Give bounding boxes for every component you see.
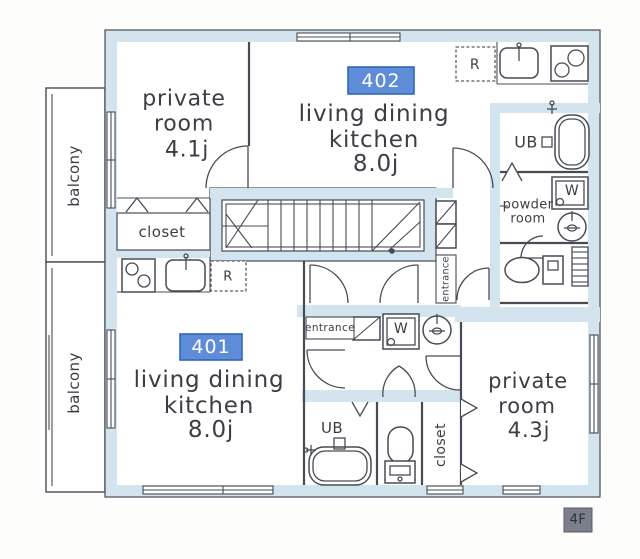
unit-401-number: 401 (191, 336, 230, 358)
ldk-401-size: 8.0j (188, 417, 234, 443)
ub-401-label: UB (321, 419, 343, 437)
fridge-401: R (211, 261, 246, 291)
kitchen-sink-402-icon (500, 43, 538, 78)
ldk-402-line1: living dining (299, 101, 450, 127)
window-top (297, 33, 400, 41)
private-402-line1: private (142, 87, 225, 112)
floor-plan-page: balcony balcony (0, 0, 640, 559)
toilet-401-icon (385, 427, 415, 483)
private-402-size: 4.1j (165, 138, 209, 163)
powder-room-line1: powder (503, 198, 554, 213)
unit-401-badge: 401 (180, 334, 242, 360)
powder-room-line2: room (510, 212, 545, 227)
staircase (222, 200, 424, 254)
bathtub-401-icon (304, 445, 371, 485)
washing-machine-401-icon: W (383, 314, 419, 349)
window-bottom-private-401 (503, 486, 540, 494)
unit-402-number: 402 (361, 70, 400, 92)
fridge-402: R (456, 47, 495, 81)
floor-badge: 4F (564, 508, 592, 532)
fridge-401-label: R (223, 270, 232, 285)
stove-401-icon (122, 259, 155, 292)
ldk-401-line2: kitchen (164, 393, 254, 419)
window-right-private-401 (590, 335, 598, 433)
ub-402-label: UB (514, 133, 538, 152)
balcony-lower: balcony (46, 262, 105, 492)
washer-402-label: W (565, 183, 579, 199)
stove-402-icon (551, 46, 588, 81)
balcony-lower-label: balcony (65, 352, 83, 414)
ldk-402-line2: kitchen (329, 127, 419, 153)
ldk-402-size: 8.0j (353, 151, 399, 177)
floor-badge-label: 4F (570, 513, 587, 528)
window-left-private-402 (107, 112, 115, 208)
shoe-cabinet-401 (353, 317, 380, 340)
entrance-401: entrance (305, 317, 355, 339)
shoe-cabinet-402 (436, 201, 456, 248)
private-401-line1: private (488, 369, 568, 393)
balcony-upper: balcony (46, 88, 105, 262)
entrance-402-label: entrance (441, 256, 452, 302)
window-bottom-ldk-401 (143, 486, 273, 494)
unit-402-badge: 402 (348, 67, 414, 94)
balcony-upper-label: balcony (65, 145, 83, 207)
closet-401-label: closet (433, 423, 449, 467)
ldk-401-line1: living dining (134, 367, 285, 393)
washing-machine-402-icon: W (552, 177, 588, 209)
private-402-line2: room (154, 112, 214, 137)
kitchen-sink-401-icon (166, 254, 205, 291)
private-401-line2: room (498, 394, 556, 418)
fridge-402-label: R (470, 57, 480, 73)
window-bottom-closet-401 (427, 486, 463, 494)
entrance-401-label: entrance (305, 322, 355, 334)
window-left-ldk-401 (107, 330, 115, 428)
entrance-402: entrance (436, 255, 456, 303)
floor-plan-svg: balcony balcony (0, 0, 640, 559)
closet-402-label: closet (139, 223, 186, 241)
private-401-size: 4.3j (508, 418, 550, 442)
washer-401-label: W (394, 321, 408, 337)
